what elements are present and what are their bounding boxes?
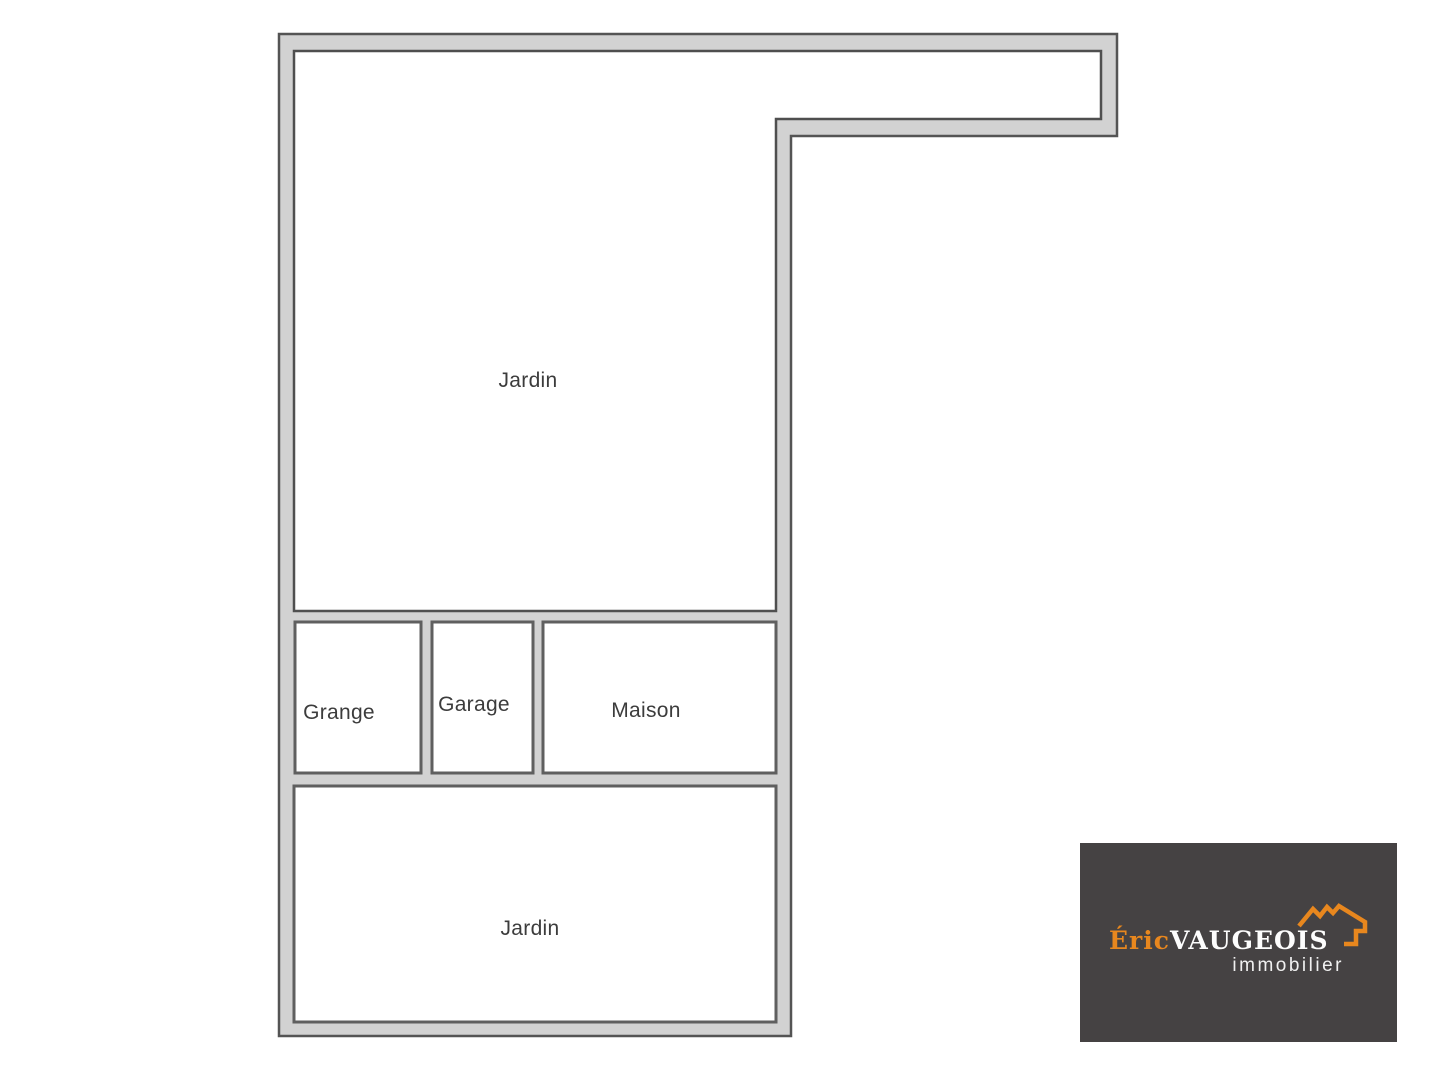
room-maison	[543, 622, 776, 773]
agency-tagline: immobilier	[1232, 955, 1344, 977]
roofline-path	[1299, 906, 1365, 944]
label-jardin-bottom: Jardin	[501, 917, 560, 941]
brand-first-name: Éric	[1109, 926, 1170, 955]
floor-plan-page: Jardin Grange Garage Maison Jardin ÉricV…	[0, 0, 1440, 1080]
room-grange	[295, 622, 421, 773]
agency-logo-card: ÉricVAUGEOIS immobilier	[1080, 843, 1397, 1042]
label-grange: Grange	[303, 701, 375, 725]
room-jardin-bottom	[294, 786, 776, 1022]
agency-brand-name: ÉricVAUGEOIS	[1109, 927, 1329, 955]
label-jardin-top: Jardin	[499, 369, 558, 393]
label-maison: Maison	[611, 699, 681, 723]
roofline-icon	[1297, 901, 1369, 949]
label-garage: Garage	[438, 693, 510, 717]
